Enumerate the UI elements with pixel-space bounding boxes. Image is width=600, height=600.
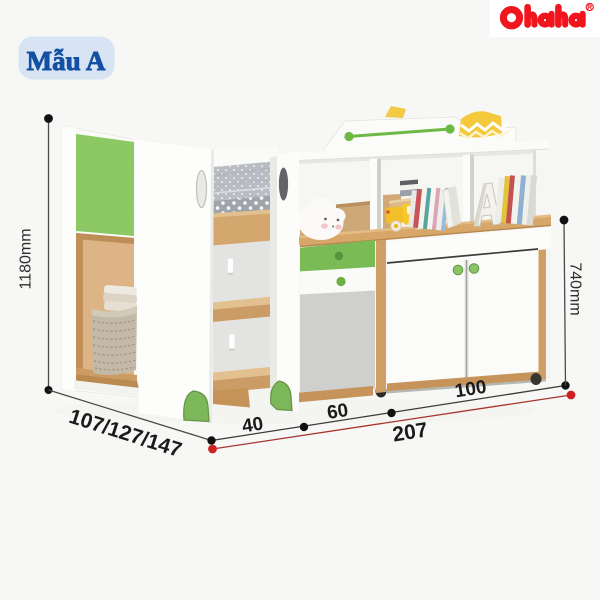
svg-text:40: 40 (241, 414, 265, 438)
svg-text:Mẫu A: Mẫu A (27, 46, 106, 76)
svg-text:R: R (587, 5, 592, 12)
svg-text:740mm: 740mm (566, 262, 583, 315)
svg-text:60: 60 (326, 400, 350, 424)
svg-text:1180mm: 1180mm (18, 228, 35, 289)
